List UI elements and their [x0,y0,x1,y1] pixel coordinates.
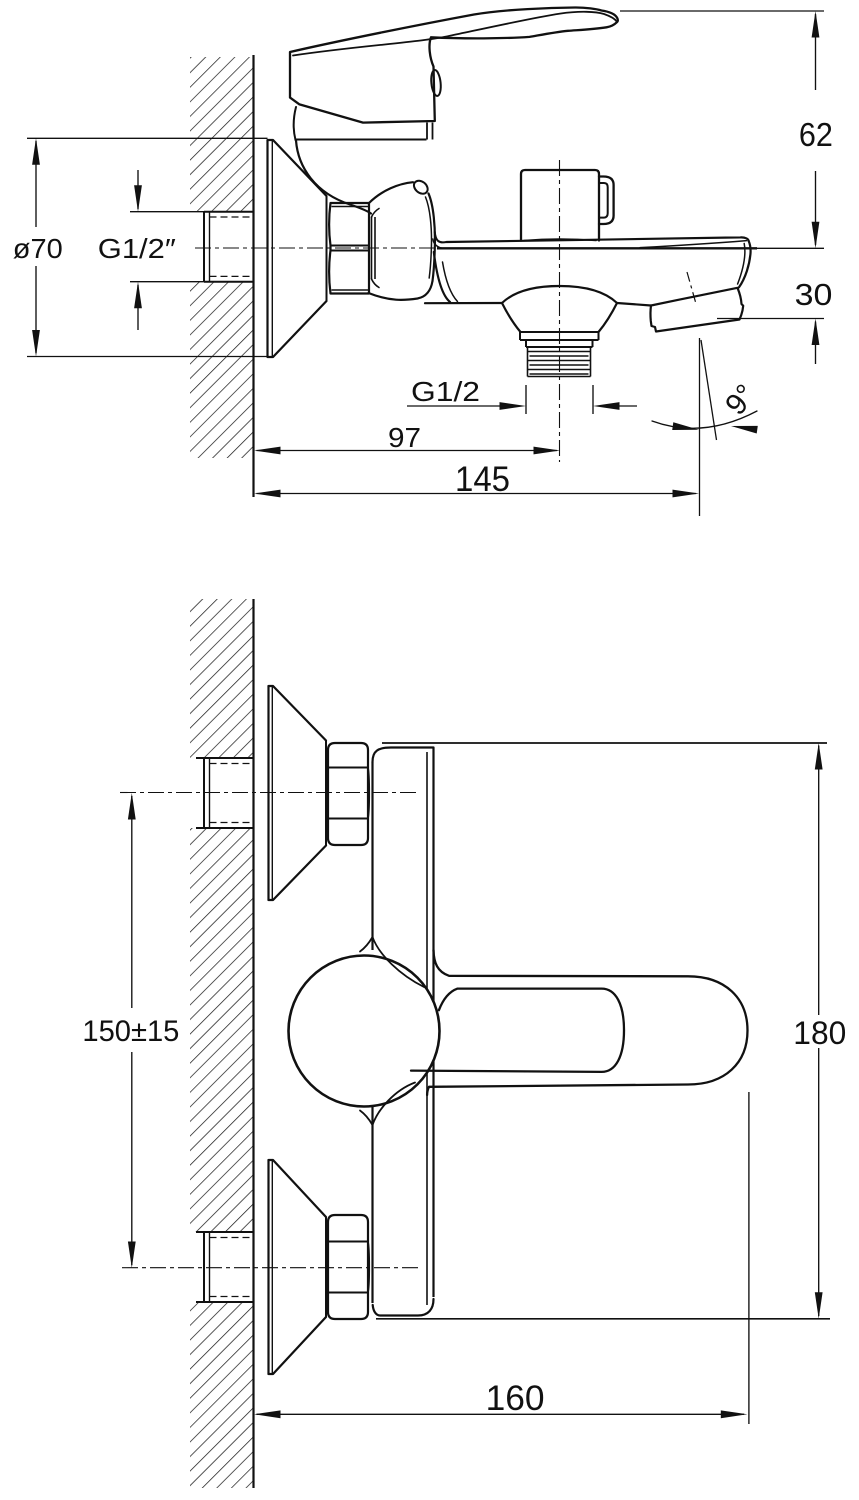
svg-text:180: 180 [793,1015,846,1051]
svg-text:160: 160 [486,1379,545,1418]
svg-text:ø70: ø70 [13,233,63,264]
svg-text:30: 30 [795,277,833,312]
svg-text:145: 145 [455,460,510,499]
svg-text:G1/2″: G1/2″ [98,233,176,264]
svg-text:62: 62 [799,116,833,153]
svg-text:150±15: 150±15 [82,1015,179,1048]
svg-text:G1/2: G1/2 [411,376,480,407]
svg-text:97: 97 [388,422,421,453]
